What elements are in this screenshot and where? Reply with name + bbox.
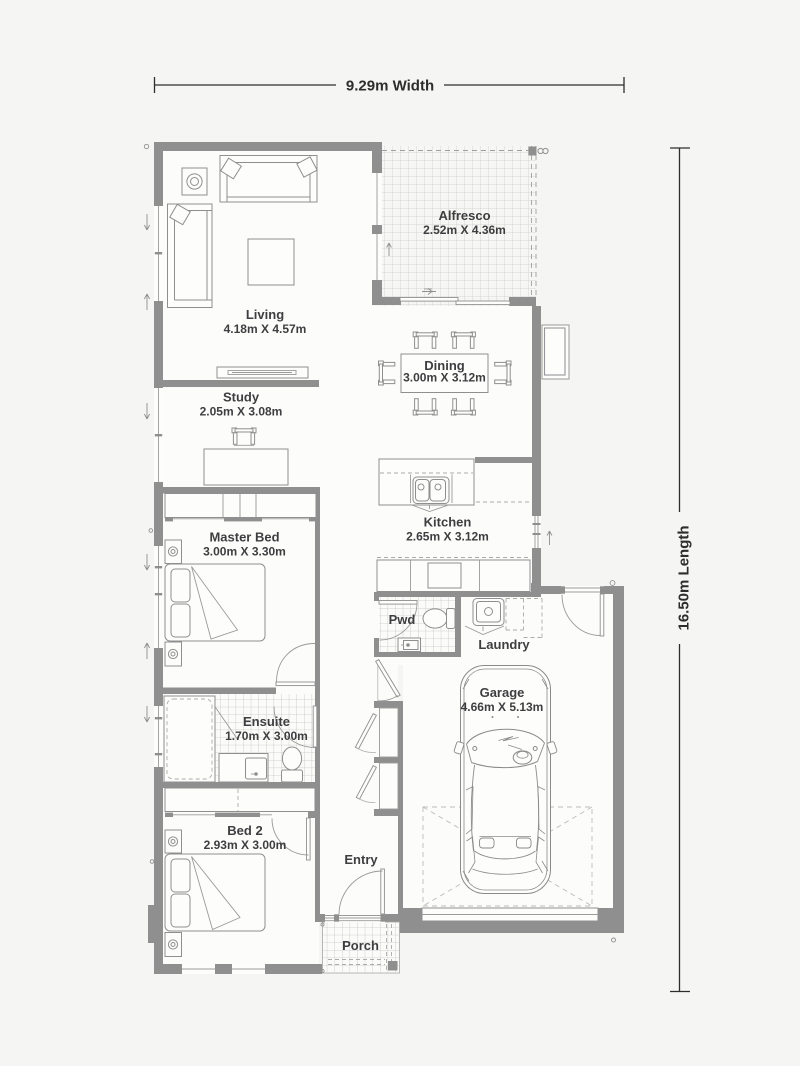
svg-text:1.70m X 3.00m: 1.70m X 3.00m <box>225 729 308 743</box>
svg-text:Pwd: Pwd <box>389 612 416 627</box>
svg-text:2.52m X 4.36m: 2.52m X 4.36m <box>423 223 506 237</box>
svg-text:Ensuite: Ensuite <box>243 714 290 729</box>
svg-text:Master Bed: Master Bed <box>209 530 279 545</box>
svg-text:2.93m X 3.00m: 2.93m X 3.00m <box>204 838 287 852</box>
svg-text:2.05m X 3.08m: 2.05m X 3.08m <box>200 405 283 419</box>
svg-text:Kitchen: Kitchen <box>424 515 472 530</box>
svg-text:4.18m X 4.57m: 4.18m X 4.57m <box>224 322 307 336</box>
svg-text:3.00m X 3.30m: 3.00m X 3.30m <box>203 545 286 559</box>
svg-text:Study: Study <box>223 390 260 405</box>
svg-text:3.00m X 3.12m: 3.00m X 3.12m <box>403 371 486 385</box>
svg-text:16.50m Length: 16.50m Length <box>675 525 692 630</box>
svg-text:Garage: Garage <box>480 685 525 700</box>
svg-text:Entry: Entry <box>344 852 378 867</box>
svg-text:Bed 2: Bed 2 <box>227 823 262 838</box>
svg-text:Laundry: Laundry <box>478 637 530 652</box>
svg-text:4.66m X 5.13m: 4.66m X 5.13m <box>461 700 544 714</box>
svg-text:Porch: Porch <box>342 938 379 953</box>
svg-text:Living: Living <box>246 307 284 322</box>
svg-text:9.29m Width: 9.29m Width <box>346 78 434 95</box>
svg-text:Alfresco: Alfresco <box>438 208 490 223</box>
svg-text:2.65m X 3.12m: 2.65m X 3.12m <box>406 530 489 544</box>
